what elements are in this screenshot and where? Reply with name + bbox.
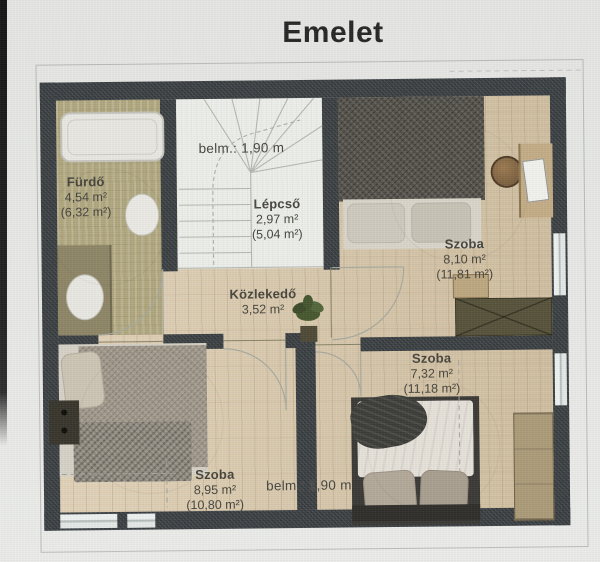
screenshot-root: Emelet [0,0,600,562]
photo-edge-strip [0,0,7,446]
window-right-2 [555,353,568,405]
nightstand [49,400,79,444]
room-area-secondary: (6,32 m²) [31,205,141,221]
window-bottom-1 [60,514,117,529]
stairs-floor [176,98,324,270]
room-area: 4,54 m² [31,190,141,206]
room-area: 2,97 m² [222,212,332,228]
floor-plan: Fürdő 4,54 m² (6,32 m²) Lépcső 2,97 m² (… [0,0,600,562]
room-label-stairs: Lépcső 2,97 m² (5,04 m²) [222,196,332,244]
room-area-secondary: (5,04 m²) [222,227,332,243]
room-label-bathroom: Fürdő 4,54 m² (6,32 m²) [31,174,141,222]
ceiling-height-label-top: belm.: 1,90 m [176,140,306,156]
window-bottom-2 [127,514,155,528]
room-area: 7,32 m² [372,366,492,383]
room-label-hallway: Közlekedő 3,52 m² [198,286,328,318]
wall-hallway-c [285,333,315,348]
bed-bottom-right-base [352,504,480,521]
wardrobe-right [513,412,554,520]
nightstand-knob [61,409,67,415]
wall-bedroom2-top [360,335,552,351]
room-name: Szoba [404,236,524,253]
sink [66,274,104,320]
room-label-bedroom-bottom-right: Szoba 7,32 m² (11,18 m²) [372,350,492,398]
room-area: 3,52 m² [198,302,328,319]
room-area-secondary: (11,81 m²) [405,267,525,284]
room-name: Lépcső [222,196,332,213]
room-area: 8,10 m² [405,252,525,269]
bathtub [60,111,165,162]
built-in-wardrobe [455,297,552,336]
room-area-secondary: (10,80 m²) [155,497,275,514]
room-label-bedroom-top-right: Szoba 8,10 m² (11,81 m²) [404,236,524,284]
room-area-secondary: (11,18 m²) [372,381,492,398]
room-name: Fürdő [31,174,141,191]
bed-top-right-blanket [338,96,485,202]
nightstand-knob [61,427,67,433]
window-right-1 [553,233,566,295]
bathtub-inner [67,118,157,155]
room-name: Közlekedő [198,286,328,303]
wall-stairs-bedroom [322,98,340,270]
room-name: Szoba [372,350,492,367]
bed-top-right-pillow [347,203,405,244]
ceiling-height-label-bottom: belm.: 1,90 m [244,477,374,493]
